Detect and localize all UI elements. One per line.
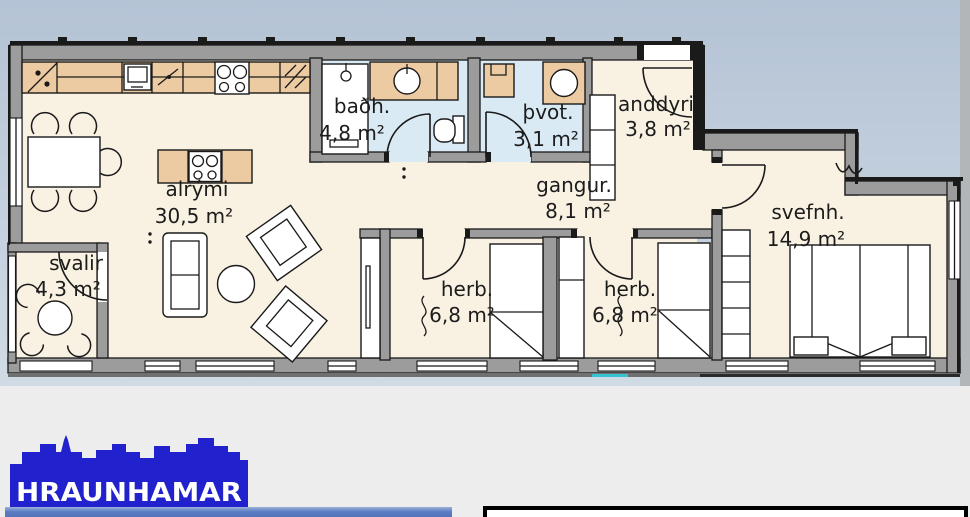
wardrobe-shelves	[722, 230, 750, 358]
nightstand	[794, 337, 828, 355]
floor-plan: alrými 30,5 m² baðh. 4,8 m² þvot. 3,1 m²…	[0, 0, 970, 517]
room-area-thvottahus: 3,1 m²	[513, 127, 579, 151]
screenshot: alrými 30,5 m² baðh. 4,8 m² þvot. 3,1 m²…	[0, 0, 970, 517]
dining-table	[28, 137, 100, 187]
room-area-alrymi: 30,5 m²	[155, 204, 233, 228]
laundry-sink	[484, 64, 514, 97]
teal-survey-mark	[592, 374, 628, 377]
room-area-herbergi-2: 6,8 m²	[592, 303, 658, 327]
room-label-herbergi-1: herb.	[441, 277, 493, 301]
room-area-svalir: 4,3 m²	[35, 277, 101, 301]
room-label-svefnherbergi: svefnh.	[771, 200, 844, 224]
washing-machine-icon	[543, 62, 585, 104]
footer-blue-bar	[5, 507, 452, 517]
room-label-gangur: gangur.	[536, 173, 612, 197]
room-area-badherbergi: 4,8 m²	[319, 121, 385, 145]
room-label-anddyri: anddyri	[618, 92, 694, 116]
oven-icon	[124, 64, 151, 90]
balcony-table	[38, 301, 72, 335]
room-label-svalir: svalir	[49, 251, 104, 275]
bed-double	[790, 245, 930, 357]
wardrobe	[559, 237, 584, 358]
coffee-table	[218, 266, 255, 303]
kitchen-counter	[22, 62, 310, 94]
entry-corner-post	[693, 45, 705, 150]
bed-single	[490, 244, 543, 358]
right-edge-strip	[960, 0, 970, 388]
room-area-svefnherbergi: 14,9 m²	[767, 227, 845, 251]
toilet-icon	[434, 116, 464, 143]
room-area-gangur: 8,1 m²	[545, 199, 611, 223]
room-label-badherbergi: baðh.	[334, 94, 390, 118]
room-label-alrymi: alrými	[166, 177, 229, 201]
room-area-anddyri: 3,8 m²	[625, 117, 691, 141]
brand-name: HRAUNHAMAR	[16, 478, 242, 508]
room-label-herbergi-2: herb.	[604, 277, 656, 301]
bed-single	[658, 243, 710, 358]
room-area-herbergi-1: 6,8 m²	[429, 303, 495, 327]
sofa	[163, 233, 207, 317]
nightstand	[892, 337, 926, 355]
tv-cabinet	[361, 238, 380, 358]
cooktop-icon	[215, 62, 249, 94]
footer-panel	[485, 508, 966, 517]
room-label-thvottahus: þvot.	[523, 100, 574, 124]
